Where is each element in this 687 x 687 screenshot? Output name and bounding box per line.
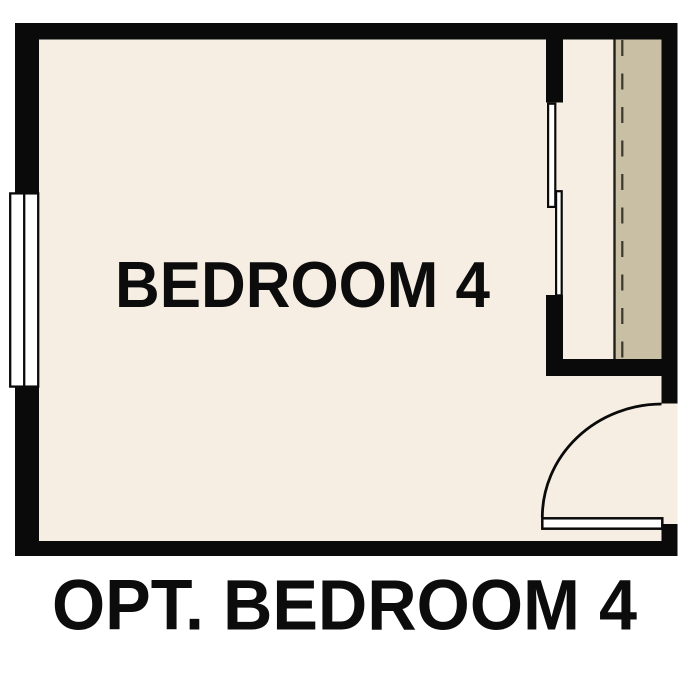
- svg-text:BEDROOM 4: BEDROOM 4: [115, 248, 490, 321]
- svg-text:OPT. BEDROOM 4: OPT. BEDROOM 4: [52, 566, 637, 646]
